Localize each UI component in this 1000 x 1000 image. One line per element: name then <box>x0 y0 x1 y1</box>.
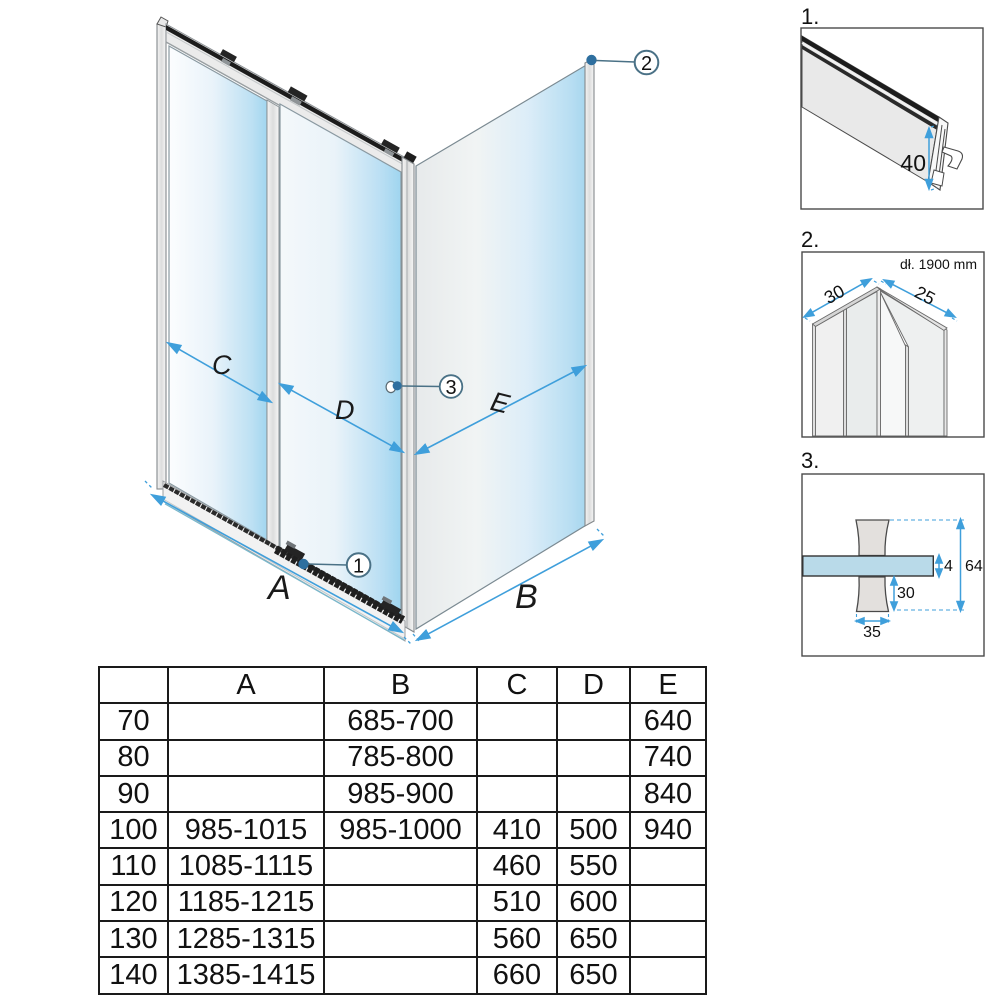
svg-text:64: 64 <box>965 558 983 575</box>
svg-text:30: 30 <box>897 585 915 602</box>
svg-text:2.: 2. <box>801 227 819 252</box>
svg-text:40: 40 <box>900 150 926 176</box>
svg-text:A: A <box>266 569 291 607</box>
svg-text:3: 3 <box>445 377 456 399</box>
svg-text:35: 35 <box>863 624 881 641</box>
svg-text:dł. 1900 mm: dł. 1900 mm <box>900 256 977 272</box>
svg-text:C: C <box>212 350 232 380</box>
svg-text:4: 4 <box>944 558 953 575</box>
svg-text:D: D <box>335 395 355 425</box>
svg-text:2: 2 <box>641 53 652 75</box>
svg-text:3.: 3. <box>801 448 819 473</box>
svg-text:1: 1 <box>353 556 364 578</box>
svg-text:B: B <box>515 578 538 616</box>
svg-text:1.: 1. <box>801 4 819 29</box>
